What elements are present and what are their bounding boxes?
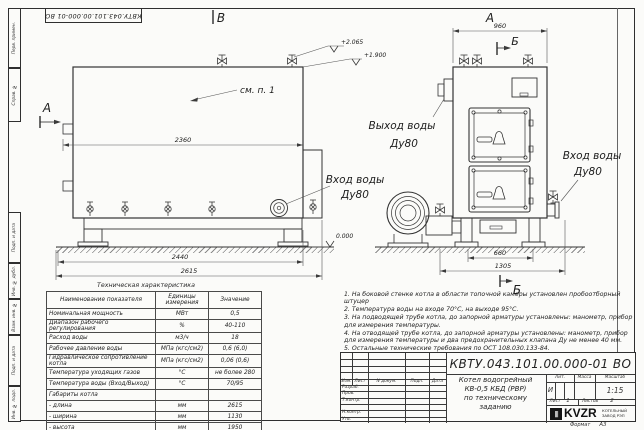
doc-number: КВТУ.043.101.00.000-01 ВО — [446, 353, 635, 374]
mass-label: Масса — [574, 374, 595, 382]
scale-value: 1:15 — [595, 382, 635, 399]
side-view-arrowheads — [54, 98, 322, 278]
spec-row: - ширинамм1130 — [47, 412, 262, 423]
lit-value: И — [546, 382, 555, 399]
dim-2615: 2615 — [181, 267, 198, 275]
side-inlet-label: Вход воды — [326, 174, 385, 186]
spec-row: Гидравлическое сопротивление котлаМПа (к… — [47, 355, 262, 368]
dim-1305: 1305 — [495, 262, 512, 270]
product-name: Котел водогрейный КВ-0,5 КБД (РВР) по те… — [447, 376, 544, 412]
technical-notes: 1. На боковой стенке котла в области топ… — [344, 291, 633, 353]
note-1: 1. На боковой стенке котла в области топ… — [344, 291, 633, 306]
row-nkontr: Н.контр. — [342, 410, 368, 417]
kvzr-logo-mark: ||| — [550, 408, 562, 420]
col-date: Дата — [429, 379, 446, 385]
sheets-label: Листов — [580, 399, 600, 405]
section-b-top: Б — [511, 35, 519, 48]
spec-row: - длинамм2615 — [47, 401, 262, 412]
scale-label: Масштаб — [595, 374, 635, 382]
spec-row: Габариты котла — [47, 390, 262, 401]
side-view-dimensions — [40, 10, 362, 280]
sheet-label: Лист — [548, 399, 562, 405]
dim-660: 660 — [494, 249, 506, 257]
front-outlet-label: Выход воды — [369, 120, 436, 132]
row-prov: Пров. — [342, 391, 368, 398]
spec-row: Номинальная мощностьМВт0,5 — [47, 309, 262, 320]
spec-row: Расход водым3/ч18 — [47, 333, 262, 344]
elevation-zero: 0.000 — [336, 233, 353, 240]
col-sign: Подп. — [405, 379, 429, 385]
spec-header-row: Наименование показателя Единицы измерени… — [47, 292, 262, 309]
spec-row: Диапазон рабочего регулирования%40-110 — [47, 320, 262, 333]
format-note: Формат А3 — [570, 421, 636, 429]
dim-2440: 2440 — [172, 253, 189, 261]
spec-row: Температура воды (Вход/Выход)°С70/95 — [47, 379, 262, 390]
spec-row: Температура уходящих газов°Сне более 280 — [47, 368, 262, 379]
front-inlet-label: Вход воды — [563, 150, 622, 162]
note-3: 3. На подводящей трубе котла, до запорно… — [344, 314, 633, 329]
kvzr-logo-text: KVZR — [564, 406, 604, 421]
spec-table-title: Техническая характеристика — [46, 282, 246, 289]
note-2: 2. Температура воды на входе 70°С, на вы… — [344, 306, 633, 313]
drawing-sheet: КВТУ.043.101.00.000-01 ВО Перв. примен. … — [0, 0, 644, 430]
front-outlet-dn: Ду80 — [389, 138, 418, 150]
elevation-1900: +1.900 — [364, 52, 386, 59]
spec-row: - высотамм1950 — [47, 423, 262, 430]
side-inlet-dn: Ду80 — [340, 189, 369, 201]
front-view-letter: А — [485, 11, 494, 25]
spec-row: Рабочее давление водыМПа (кгс/см2)0,6 (6… — [47, 344, 262, 355]
col-doc: N докум. — [368, 379, 405, 385]
sheets-value: 2 — [605, 399, 619, 405]
sheet-value: 1 — [563, 399, 573, 405]
spec-table: Наименование показателя Единицы измерени… — [46, 291, 262, 430]
see-note-ref: см. п. 1 — [240, 86, 275, 96]
dim-2360: 2360 — [175, 136, 192, 144]
side-section-letter: А — [42, 101, 51, 115]
title-block: Изм. Лист N докум. Подп. Дата Разраб. Пр… — [340, 352, 636, 422]
dim-960: 960 — [494, 22, 506, 30]
note-4: 4. На отводящей трубе котла, до запорной… — [344, 330, 633, 345]
front-view — [375, 55, 585, 247]
company-name: КОТЕЛЬНЫЙ ЗАВОД РЭП — [602, 409, 636, 418]
row-tkontr: Т.контр. — [342, 398, 368, 404]
front-inlet-dn: Ду80 — [573, 166, 602, 178]
side-view-letter: В — [217, 11, 225, 25]
front-view-labels: А 960 Б Выход воды Ду80 Вход воды Ду80 6… — [369, 11, 622, 297]
lit-label: Лит. — [546, 374, 574, 382]
elevation-2065: +2.065 — [341, 39, 363, 46]
side-view — [56, 55, 334, 247]
row-utv: Утв. — [342, 417, 368, 423]
